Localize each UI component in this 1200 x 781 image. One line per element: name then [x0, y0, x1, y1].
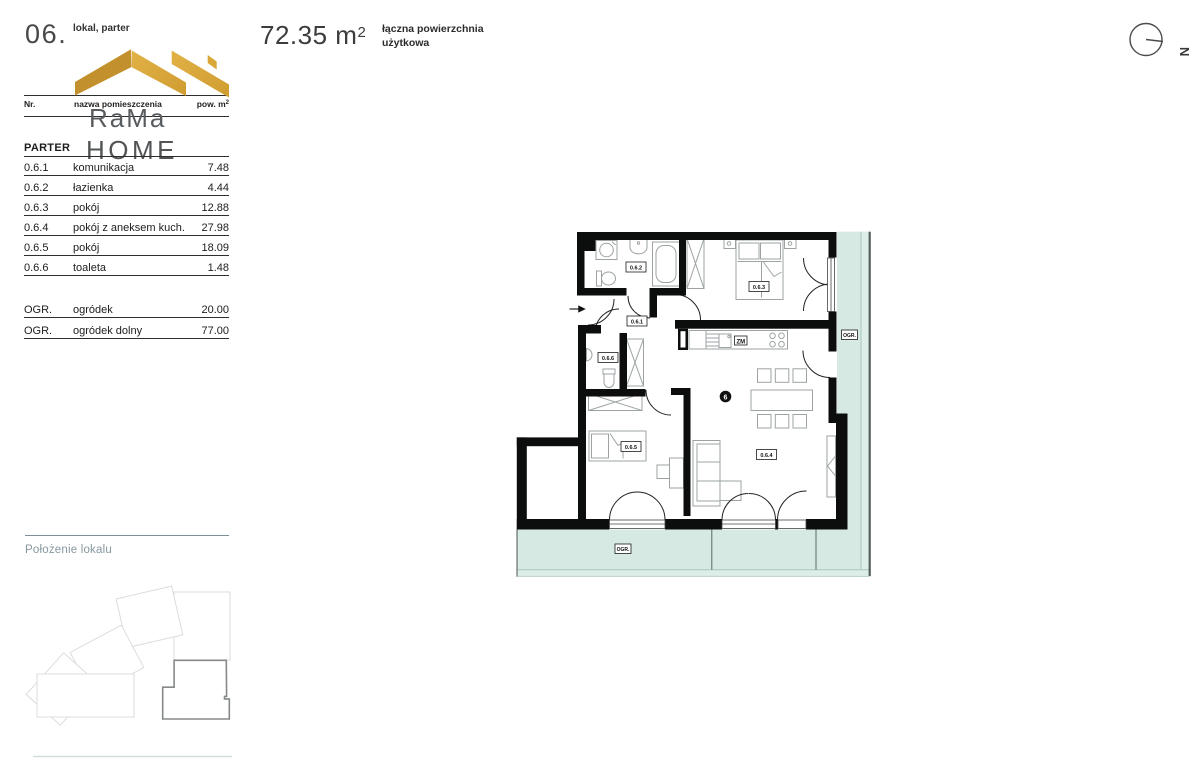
svg-text:0.6.5: 0.6.5: [625, 445, 637, 451]
svg-text:0.6.6: 0.6.6: [602, 356, 614, 362]
svg-text:0.6.2: 0.6.2: [630, 266, 642, 272]
svg-text:0.6.4: 0.6.4: [760, 453, 773, 459]
svg-text:0.6.3: 0.6.3: [753, 285, 765, 291]
svg-text:6: 6: [724, 395, 728, 402]
svg-text:0.6.1: 0.6.1: [631, 320, 643, 326]
svg-text:N: N: [1177, 47, 1192, 56]
svg-text:ZM: ZM: [736, 340, 745, 346]
svg-text:OGR.: OGR.: [843, 333, 856, 339]
svg-text:OGR.: OGR.: [617, 547, 630, 553]
